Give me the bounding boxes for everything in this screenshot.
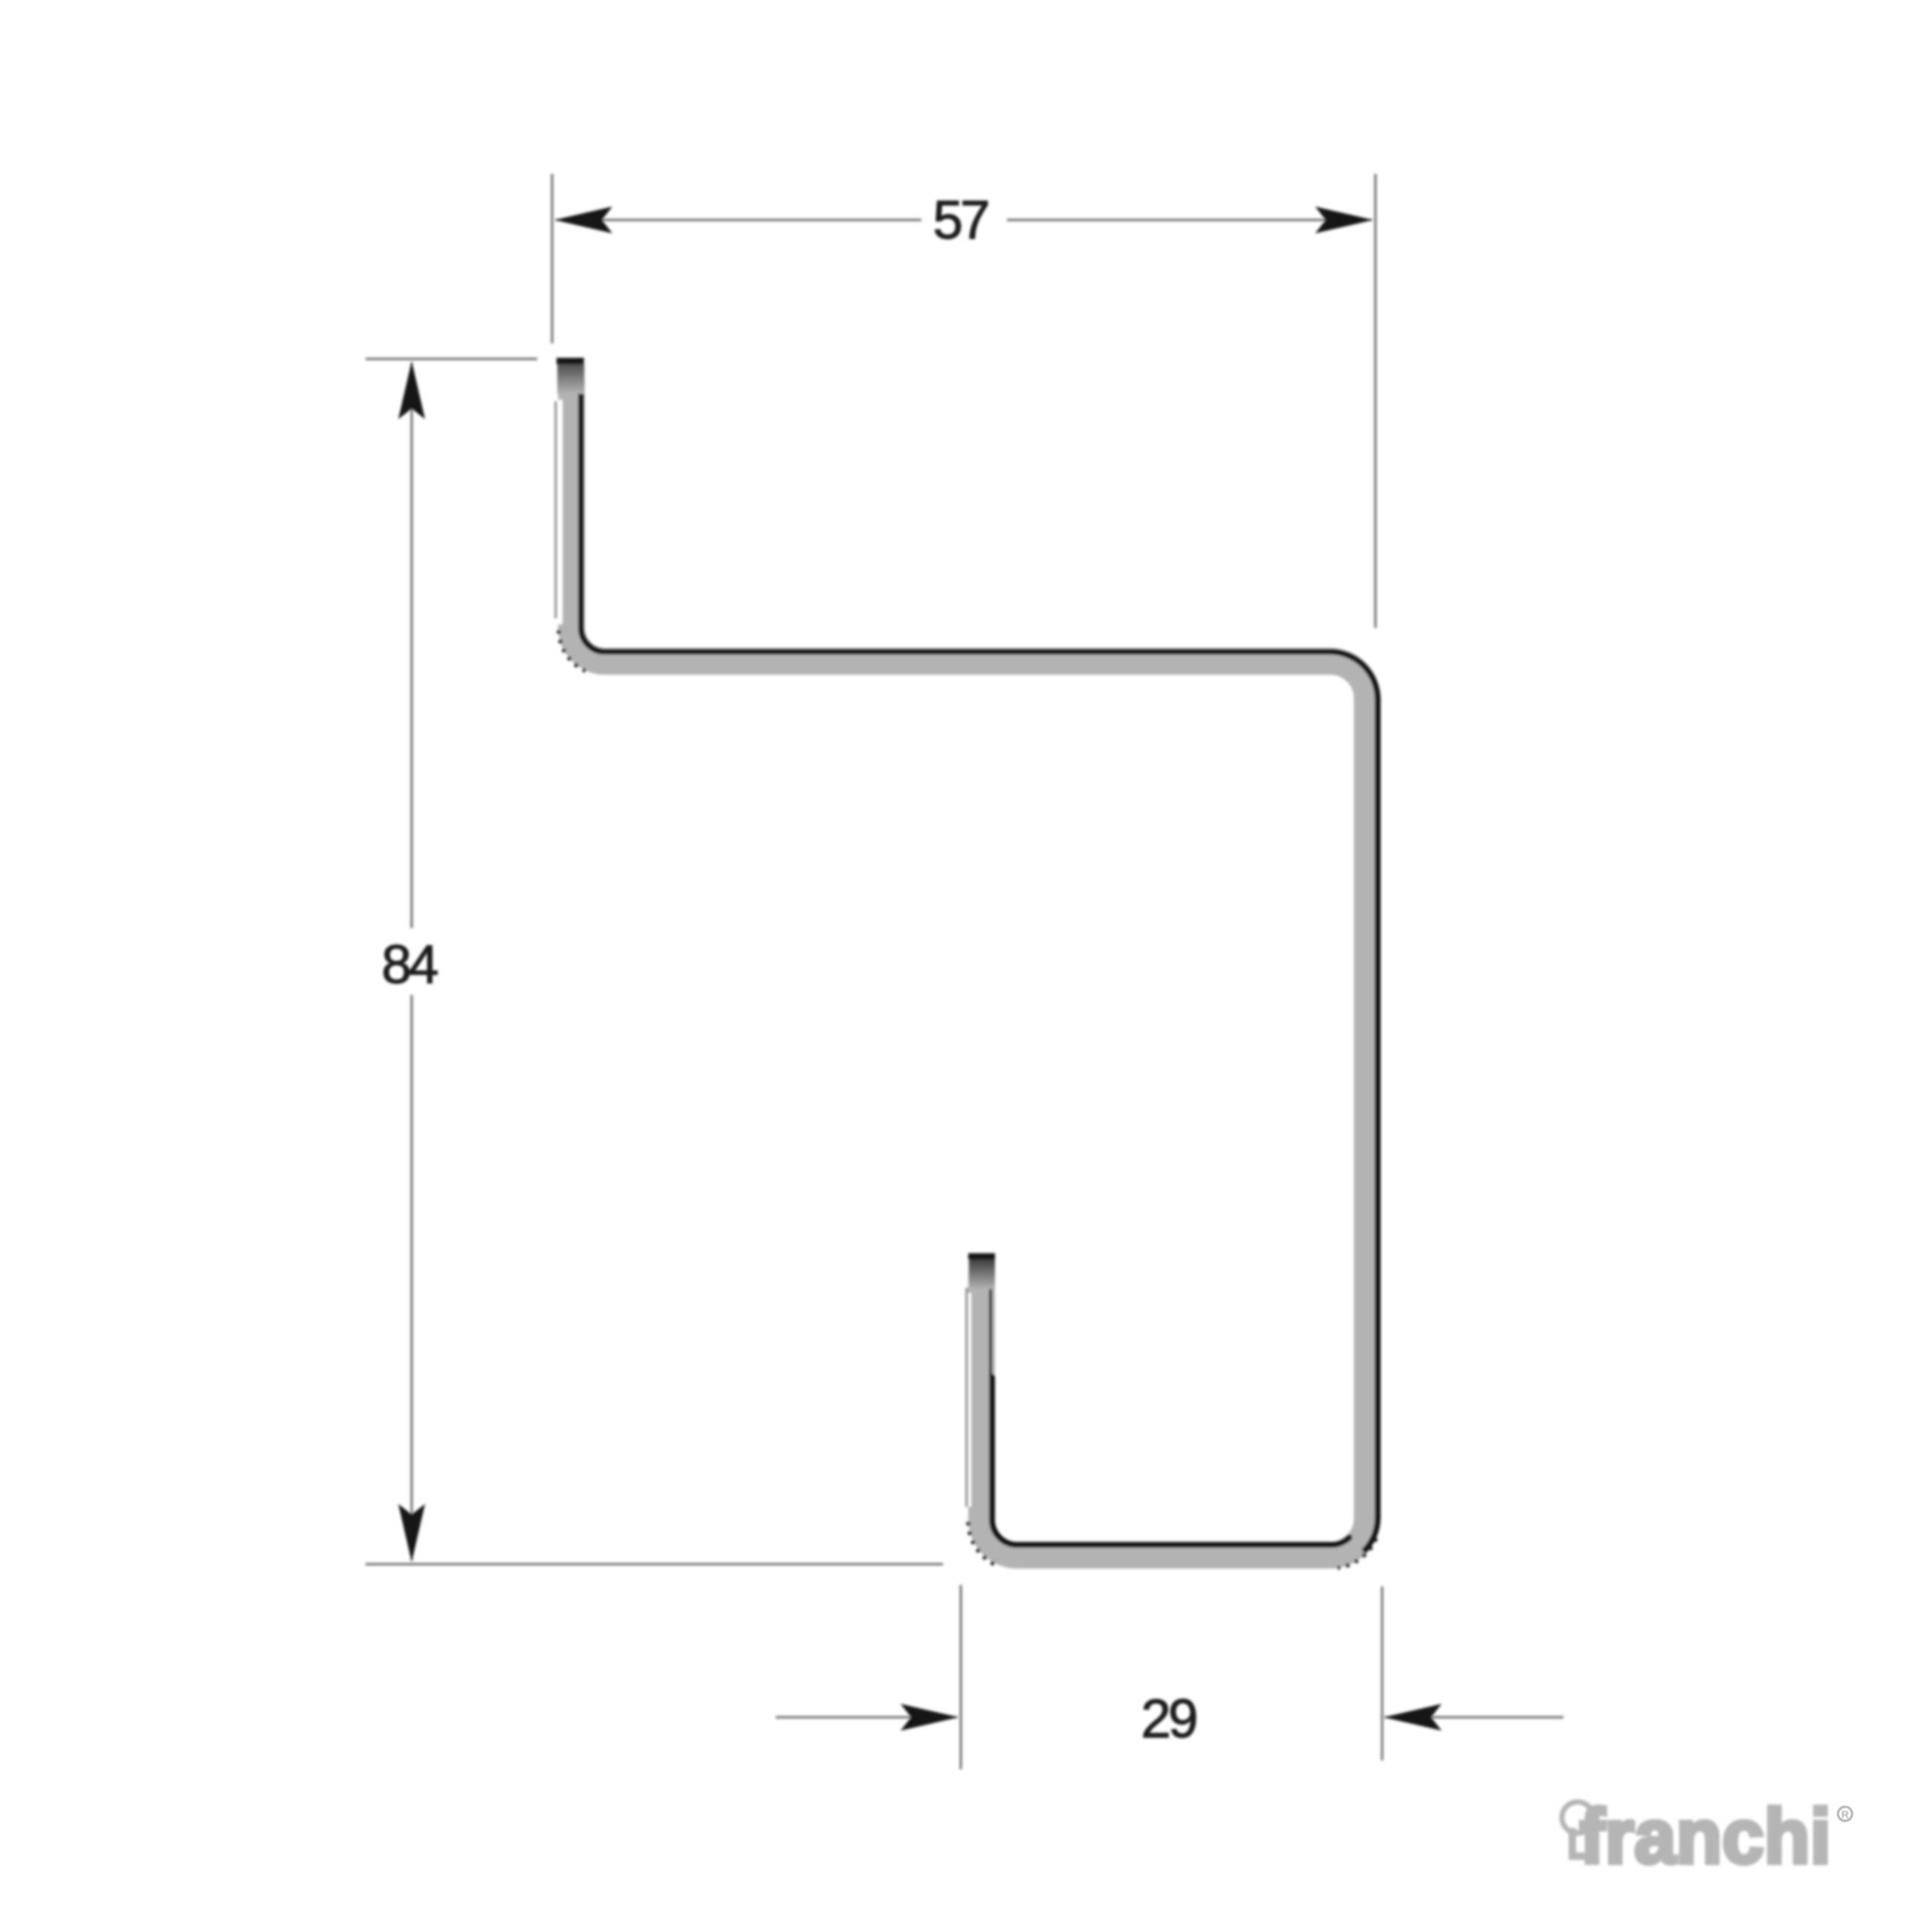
- svg-text:29: 29: [1141, 1689, 1196, 1749]
- svg-text:R: R: [1841, 1809, 1849, 1821]
- svg-text:84: 84: [381, 935, 438, 995]
- svg-text:franchi: franchi: [1580, 1794, 1831, 1880]
- svg-text:57: 57: [933, 190, 988, 250]
